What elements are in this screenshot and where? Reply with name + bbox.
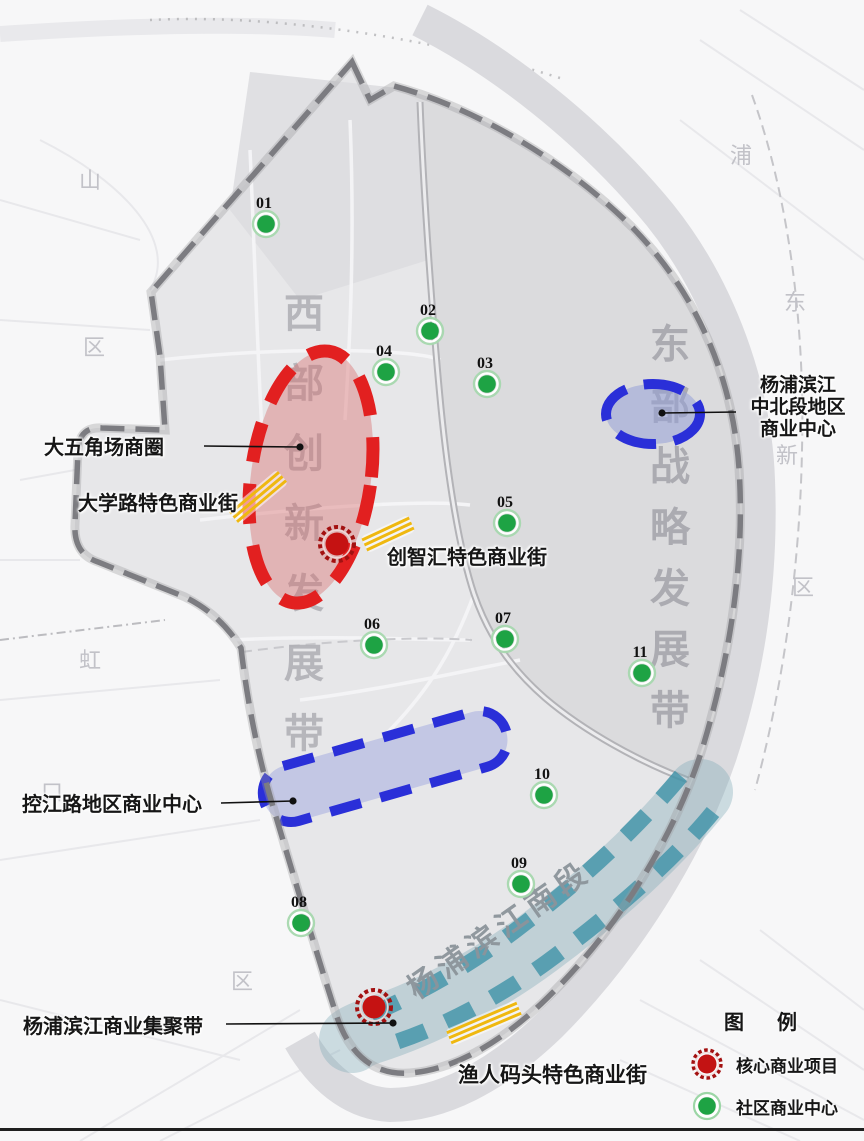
community-marker-number: 10 — [534, 766, 550, 783]
east-belt-watermark-char: 战 — [650, 444, 690, 490]
chuangzhihui-label: 创智汇特色商业街 — [387, 546, 547, 569]
community-marker-number: 09 — [511, 855, 527, 872]
neighbor-district-char: 新 — [776, 444, 798, 469]
community-marker-number: 06 — [364, 616, 380, 633]
community-commercial-dot-icon — [689, 1088, 725, 1124]
binjiang-midnorth-label-line: 商业中心 — [742, 418, 854, 440]
legend-item-core: 核心商业项目 — [689, 1046, 838, 1082]
neighbor-district-char: 虹 — [79, 649, 101, 674]
east-belt-watermark-char: 发 — [650, 566, 690, 612]
wujiaochang-label: 大五角场商圈 — [44, 436, 164, 459]
community-marker-number: 01 — [256, 195, 272, 212]
north-creek — [0, 26, 335, 34]
neighbor-district-char: 浦 — [730, 144, 752, 169]
west-belt-watermark-char: 带 — [284, 711, 324, 757]
community-marker-number: 08 — [291, 894, 307, 911]
admin-boundary-west — [0, 620, 165, 640]
neighbor-district-char: 东 — [784, 291, 806, 316]
community-marker-number: 05 — [497, 494, 513, 511]
east-belt-watermark-char: 带 — [650, 688, 690, 734]
east-belt-watermark-char: 东 — [650, 322, 690, 368]
binjiang-midnorth-label-pointer-line — [662, 412, 736, 413]
binjiang-midnorth-label-pointer-dot — [658, 409, 665, 416]
legend-title: 图 例 — [724, 1006, 810, 1035]
legend-item-community-label: 社区商业中心 — [736, 1094, 838, 1119]
neighbor-district-char: 区 — [792, 576, 814, 601]
binjiang-cluster-label: 杨浦滨江商业集聚带 — [23, 1015, 203, 1038]
binjiang-midnorth-label-line: 杨浦滨江 — [742, 374, 854, 396]
planning-map: 西部创新发展带东部战略发展带 山区虹口浦东新区区 杨浦滨江南段 01020304… — [0, 0, 864, 1141]
neighbor-district-char: 区 — [83, 336, 105, 361]
west-belt-watermark-char: 西 — [284, 291, 324, 337]
neighbor-district-char: 区 — [231, 970, 253, 995]
neighbor-district-char: 山 — [79, 169, 101, 194]
east-belt-watermark-char: 展 — [650, 627, 690, 673]
west-belt-watermark-char: 展 — [284, 641, 324, 687]
wujiaochang-label-pointer-line — [204, 446, 300, 447]
daxue-road-label: 大学路特色商业街 — [78, 492, 238, 515]
community-marker-number: 07 — [495, 610, 511, 627]
legend-item-core-label: 核心商业项目 — [736, 1052, 838, 1077]
yuren-wharf-label: 渔人码头特色商业街 — [458, 1063, 647, 1087]
binjiang-midnorth-label-line: 中北段地区 — [742, 396, 854, 418]
kongjiang-label-pointer-dot — [289, 797, 296, 804]
binjiang-midnorth-zone-ellipse — [606, 384, 700, 444]
community-marker-number: 04 — [376, 343, 392, 360]
kongjiang-label: 控江路地区商业中心 — [22, 793, 202, 816]
binjiang-cluster-label-pointer-line — [226, 1023, 393, 1024]
map-canvas: 西部创新发展带东部战略发展带 山区虹口浦东新区区 杨浦滨江南段 01020304… — [0, 0, 864, 1141]
legend-item-community: 社区商业中心 — [689, 1088, 838, 1124]
community-marker-number: 11 — [632, 644, 647, 661]
binjiang-cluster-label-pointer-dot — [389, 1019, 396, 1026]
core-commercial-dot-icon — [689, 1046, 725, 1082]
community-marker-number: 02 — [420, 302, 436, 319]
east-belt-watermark-char: 略 — [650, 505, 691, 551]
binjiang-midnorth-label: 杨浦滨江中北段地区商业中心 — [742, 374, 854, 440]
bottom-rule — [0, 1128, 864, 1131]
community-marker-number: 03 — [477, 355, 493, 372]
wujiaochang-label-pointer-dot — [296, 443, 303, 450]
